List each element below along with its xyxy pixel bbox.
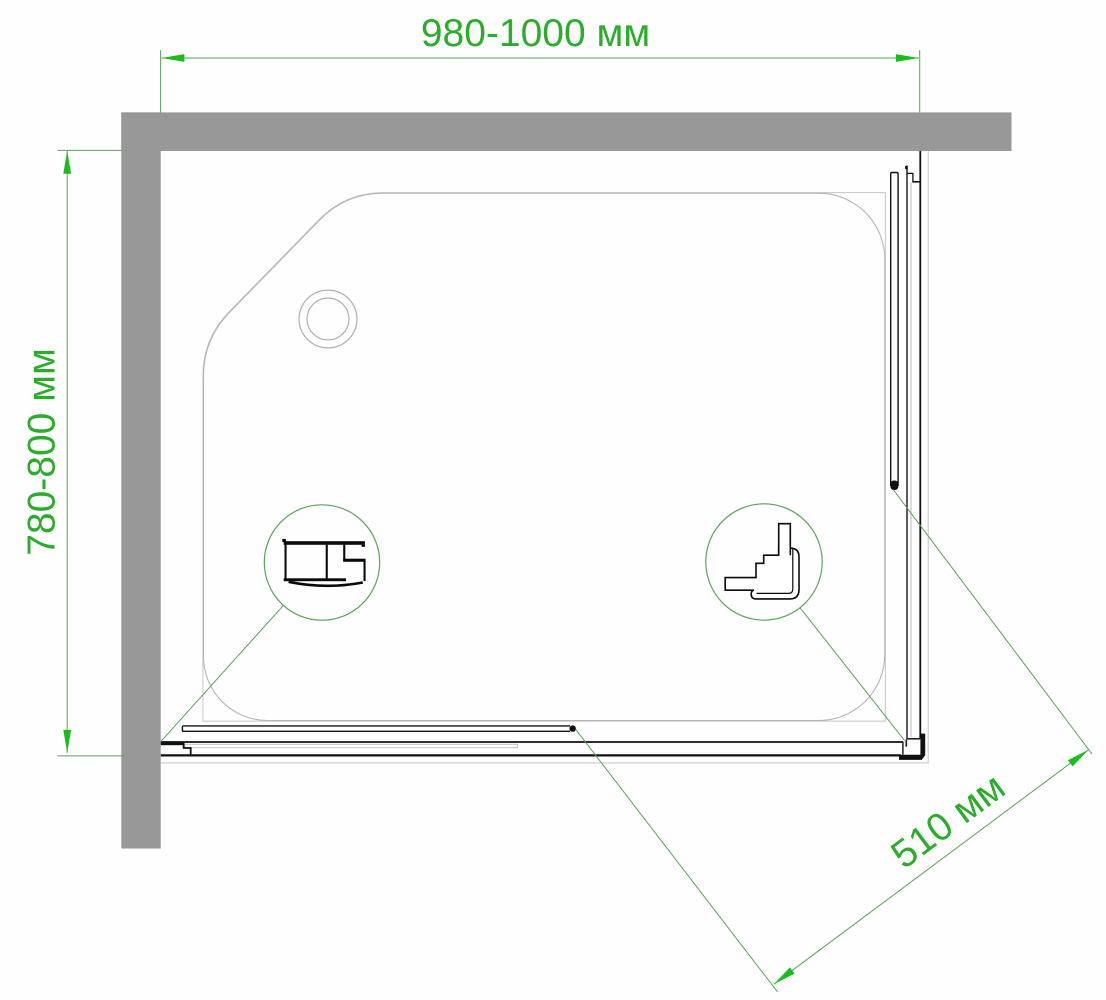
- svg-text:980-1000 мм: 980-1000 мм: [421, 12, 650, 55]
- svg-text:780-800 мм: 780-800 мм: [21, 348, 64, 556]
